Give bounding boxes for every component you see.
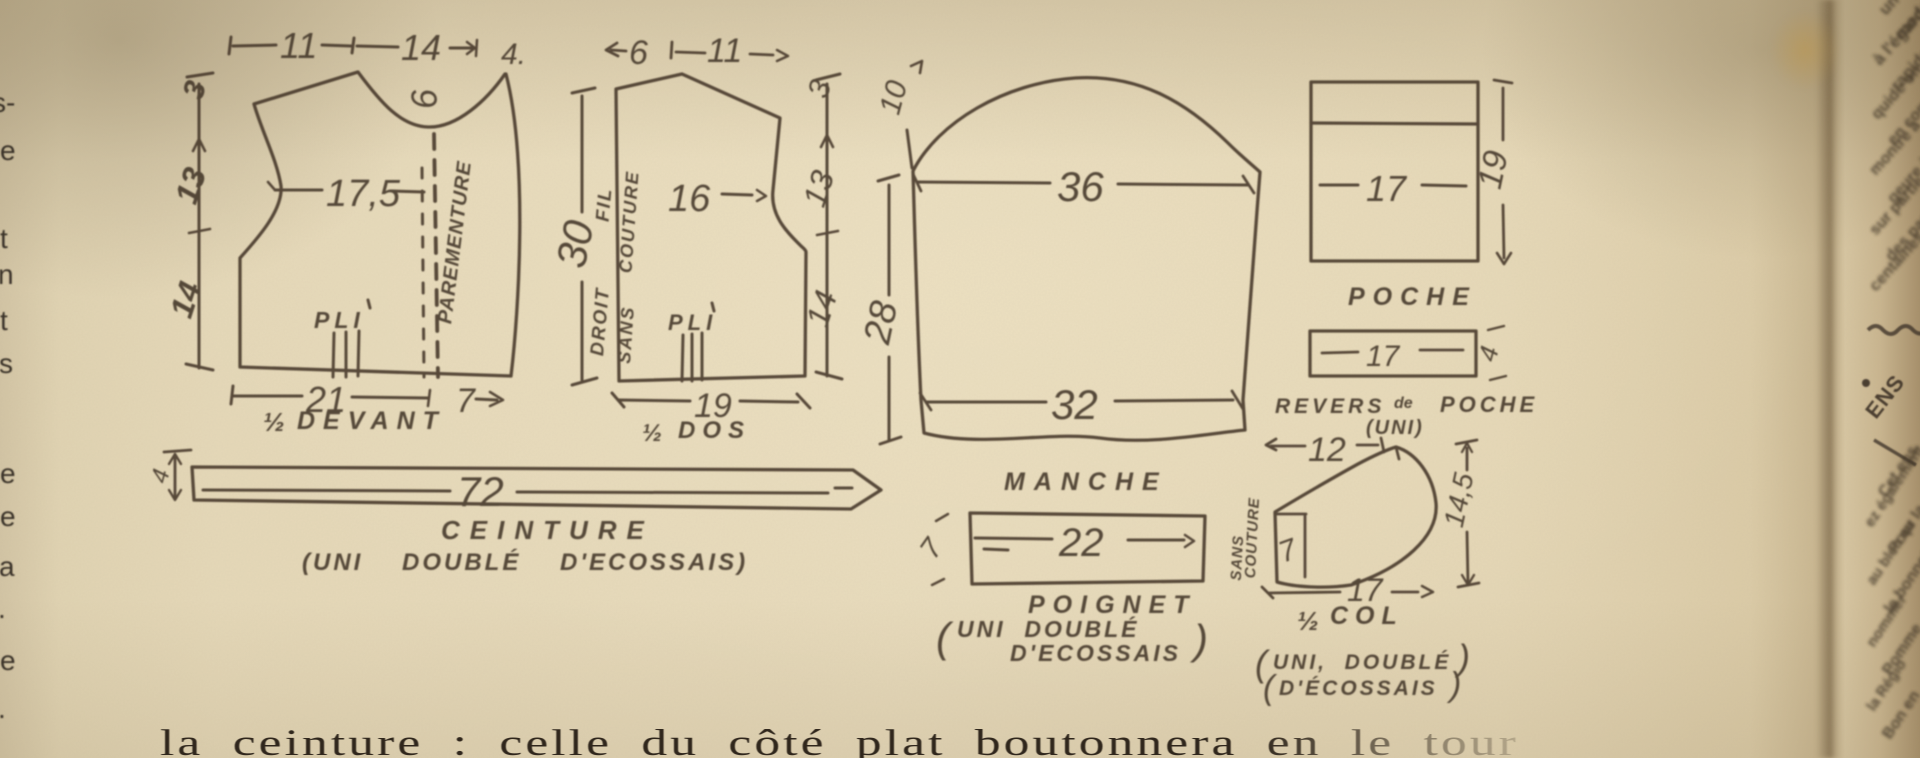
svg-text:17: 17 (1366, 340, 1401, 373)
svg-text:t: t (0, 305, 8, 336)
svg-text:DROIT: DROIT (587, 286, 614, 357)
svg-text:MANCHE: MANCHE (1004, 468, 1168, 496)
svg-text:COUTURE: COUTURE (1242, 497, 1263, 579)
svg-text:POCHE: POCHE (1440, 392, 1538, 417)
svg-text:POIGNET: POIGNET (1028, 591, 1197, 619)
svg-text:POCHE: POCHE (1348, 283, 1477, 311)
svg-text:s-: s- (0, 87, 15, 118)
svg-text:UNI DOUBLÉ: UNI DOUBLÉ (957, 615, 1140, 642)
svg-text:.: . (0, 693, 6, 724)
svg-text:14: 14 (163, 277, 208, 322)
svg-text:10: 10 (874, 77, 915, 118)
svg-text:REVERS: REVERS (1275, 395, 1385, 418)
svg-text:DEVANT: DEVANT (297, 407, 446, 435)
svg-text:12: 12 (1308, 431, 1346, 469)
svg-text:17,5: 17,5 (326, 173, 401, 215)
svg-text:(: ( (936, 614, 954, 661)
svg-text:DOS: DOS (678, 417, 751, 444)
svg-text:28: 28 (856, 297, 906, 348)
svg-text:13: 13 (168, 163, 213, 208)
svg-text:e: e (0, 645, 16, 676)
svg-text:a: a (0, 551, 15, 582)
svg-text:½: ½ (1297, 606, 1319, 636)
svg-text:e: e (0, 135, 16, 166)
svg-text:4.: 4. (501, 38, 526, 71)
svg-text:PLI: PLI (314, 307, 365, 333)
svg-text:D'ECOSSAIS: D'ECOSSAIS (1010, 640, 1181, 666)
svg-text:36: 36 (1057, 163, 1104, 210)
svg-text:(: ( (1263, 669, 1278, 707)
svg-text:½: ½ (263, 407, 285, 437)
svg-text:s: s (0, 348, 13, 379)
svg-text:4: 4 (146, 466, 176, 486)
svg-text:11: 11 (707, 32, 742, 70)
svg-text:14: 14 (401, 27, 441, 68)
svg-text:): ) (1189, 616, 1208, 663)
svg-text:ENS: ENS (1860, 370, 1909, 423)
svg-text:PAREMENTURE: PAREMENTURE (434, 160, 476, 325)
svg-text:COL: COL (1330, 602, 1404, 630)
svg-text:e: e (0, 458, 16, 489)
svg-text:22: 22 (1058, 521, 1104, 565)
svg-text:30: 30 (547, 216, 603, 272)
svg-text:7: 7 (456, 382, 476, 420)
svg-text:UNI, DOUBLÉ: UNI, DOUBLÉ (1273, 651, 1451, 674)
svg-text:16: 16 (668, 178, 711, 220)
svg-text:FIL: FIL (593, 186, 617, 222)
svg-text:SANS: SANS (614, 305, 638, 364)
svg-text:14,5: 14,5 (1438, 470, 1480, 530)
svg-text:de: de (1394, 395, 1413, 412)
svg-text:11: 11 (280, 25, 317, 66)
svg-text:t: t (0, 223, 8, 254)
svg-text:D'ÉCOSSAIS: D'ÉCOSSAIS (1279, 677, 1438, 700)
svg-text:32: 32 (1051, 381, 1098, 428)
svg-text:(UNI): (UNI) (1366, 417, 1424, 439)
svg-text:6: 6 (629, 34, 648, 72)
svg-text:6: 6 (403, 87, 446, 111)
svg-text:(UNI DOUBLÉ D'ECOSSAIS): (UNI DOUBLÉ D'ECOSSAIS) (302, 548, 748, 576)
svg-text:7: 7 (1274, 532, 1302, 569)
svg-text:PLI: PLI (668, 310, 717, 335)
svg-text:e: e (0, 501, 16, 532)
svg-text:½: ½ (642, 420, 662, 447)
svg-text:n: n (0, 259, 14, 290)
svg-text:7: 7 (914, 532, 951, 565)
svg-text:.: . (0, 593, 6, 624)
svg-text:17: 17 (1366, 168, 1408, 209)
svg-text:CEINTURE: CEINTURE (441, 515, 654, 545)
svg-text:13: 13 (796, 166, 841, 211)
svg-text:19: 19 (1471, 147, 1516, 192)
svg-text:COUTURE: COUTURE (615, 170, 642, 274)
svg-text:3: 3 (177, 77, 214, 103)
svg-text:72: 72 (457, 468, 504, 515)
